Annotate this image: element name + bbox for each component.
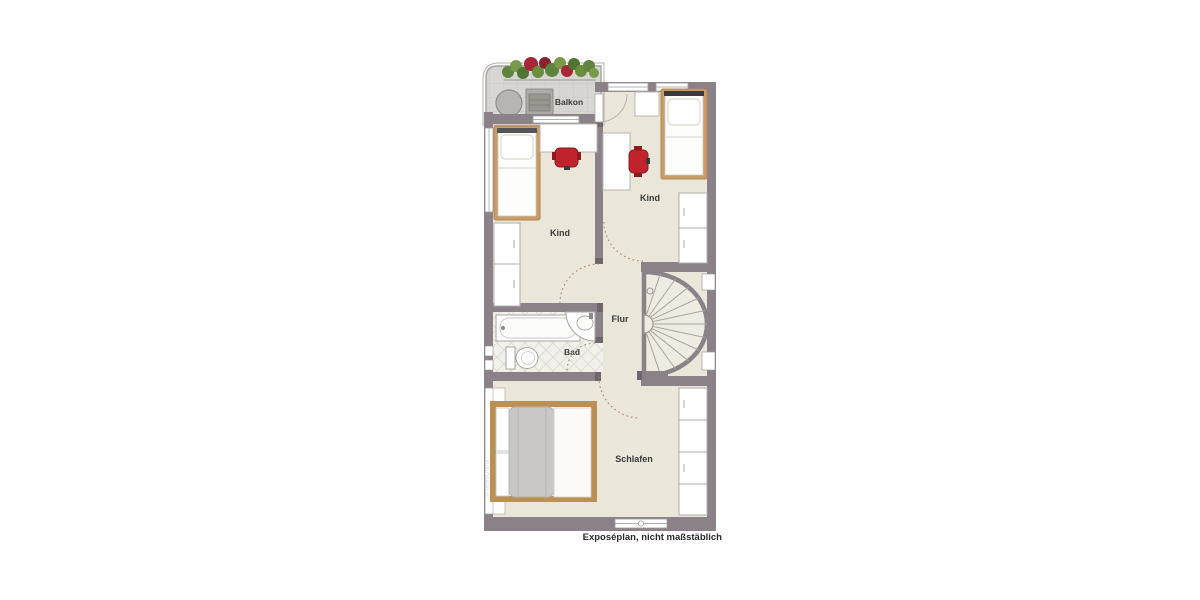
double-bed-icon: [493, 404, 594, 499]
room-label-flur: Flur: [612, 314, 629, 324]
stair-post: [647, 288, 653, 294]
watermark: © ImmoGrafik: [484, 460, 491, 497]
round-table-icon: [496, 90, 522, 116]
balcony-door-leaf: [595, 94, 603, 122]
wardrobe-icon: [679, 193, 707, 263]
wardrobe-icon: [494, 223, 520, 306]
room-label-kind-right: Kind: [640, 193, 660, 203]
room-label-kind-left: Kind: [550, 228, 570, 238]
single-bed-icon: [494, 126, 540, 220]
wall-stair-bottom: [641, 376, 707, 386]
wall-bottom: [484, 517, 716, 531]
wall-niche: [702, 352, 715, 370]
room-label-balkon: Balkon: [555, 97, 583, 107]
window-icon: [485, 128, 493, 212]
desk-icon: [603, 133, 630, 190]
wall-niche: [485, 346, 493, 356]
single-bed-icon: [661, 89, 707, 179]
floorplan-canvas: Balkon: [0, 0, 1200, 600]
bench-icon: [526, 89, 553, 117]
wall-niche: [702, 274, 715, 290]
plan-caption: Exposéplan, nicht maßstäblich: [583, 532, 723, 543]
wc-icon: [506, 347, 538, 369]
window-icon: [615, 519, 667, 528]
window-icon: [608, 83, 648, 91]
room-label-bad: Bad: [564, 347, 580, 357]
window-icon: [533, 116, 579, 123]
built-in-closet-icon: [679, 388, 707, 515]
nightstand-icon: [635, 92, 659, 116]
room-label-schlafen: Schlafen: [615, 454, 653, 464]
floorplan-page: Balkon: [0, 0, 1200, 600]
wall-bath-bottom: [484, 372, 601, 381]
wall-niche: [485, 360, 493, 370]
wall-right: [707, 82, 716, 531]
